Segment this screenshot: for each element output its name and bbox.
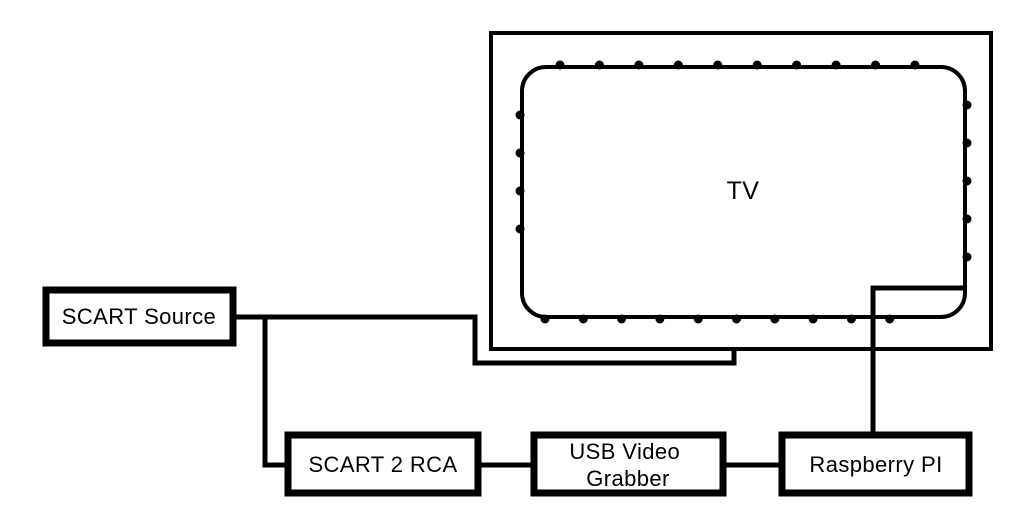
scart-2-rca-label: SCART 2 RCA (308, 452, 457, 477)
diagram-canvas: TV SCART Source SCART 2 RCA USB Video Gr… (0, 0, 1024, 511)
wire-scart-source-to-tv (233, 317, 734, 363)
wire-raspberry-pi-to-tv (873, 288, 963, 436)
scart-source-label: SCART Source (62, 304, 216, 329)
usb-video-grabber-label-line1: USB Video (569, 439, 680, 464)
raspberry-pi-label: Raspberry PI (809, 452, 942, 477)
wiring-diagram: TV SCART Source SCART 2 RCA USB Video Gr… (0, 0, 1024, 511)
tv-label: TV (727, 177, 760, 205)
usb-video-grabber-label-line2: Grabber (586, 466, 670, 491)
